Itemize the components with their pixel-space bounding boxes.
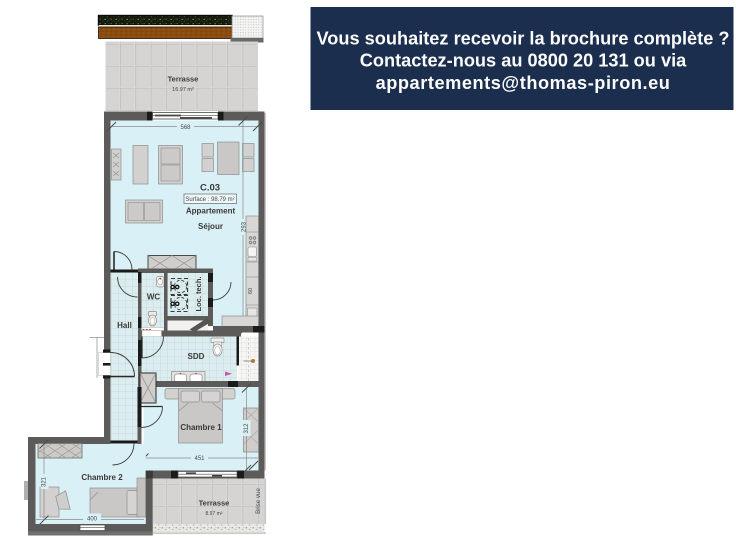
svg-text:Chambre 2: Chambre 2 bbox=[81, 473, 123, 482]
svg-text:SDD: SDD bbox=[188, 352, 205, 361]
svg-text:Contactez-nous au 0800 20 131: Contactez-nous au 0800 20 131 ou via bbox=[360, 51, 687, 71]
svg-text:16.97 m²: 16.97 m² bbox=[172, 87, 194, 93]
svg-text:Terrasse: Terrasse bbox=[168, 75, 199, 84]
svg-text:Brise vue: Brise vue bbox=[255, 488, 262, 514]
svg-text:321: 321 bbox=[42, 476, 48, 487]
svg-text:Appartement: Appartement bbox=[186, 207, 236, 216]
svg-text:Séjour: Séjour bbox=[198, 222, 223, 231]
svg-text:Surface : 98.79 m²: Surface : 98.79 m² bbox=[185, 197, 234, 203]
svg-text:Chambre 1: Chambre 1 bbox=[180, 423, 222, 432]
svg-text:8.97 m²: 8.97 m² bbox=[206, 511, 223, 517]
svg-text:Terrasse: Terrasse bbox=[199, 499, 230, 508]
svg-text:400: 400 bbox=[87, 517, 98, 523]
svg-text:Loc. tech.: Loc. tech. bbox=[194, 276, 203, 311]
svg-text:312: 312 bbox=[244, 423, 250, 434]
svg-text:Hall: Hall bbox=[117, 321, 132, 330]
svg-text:Vous souhaitez recevoir la bro: Vous souhaitez recevoir la brochure comp… bbox=[316, 29, 729, 49]
svg-text:568: 568 bbox=[180, 125, 191, 131]
svg-text:60: 60 bbox=[248, 288, 254, 294]
svg-text:WC: WC bbox=[147, 293, 161, 302]
svg-text:451: 451 bbox=[194, 456, 205, 462]
svg-text:C.03: C.03 bbox=[200, 183, 220, 194]
svg-text:appartements@thomas-piron.eu: appartements@thomas-piron.eu bbox=[376, 73, 671, 93]
